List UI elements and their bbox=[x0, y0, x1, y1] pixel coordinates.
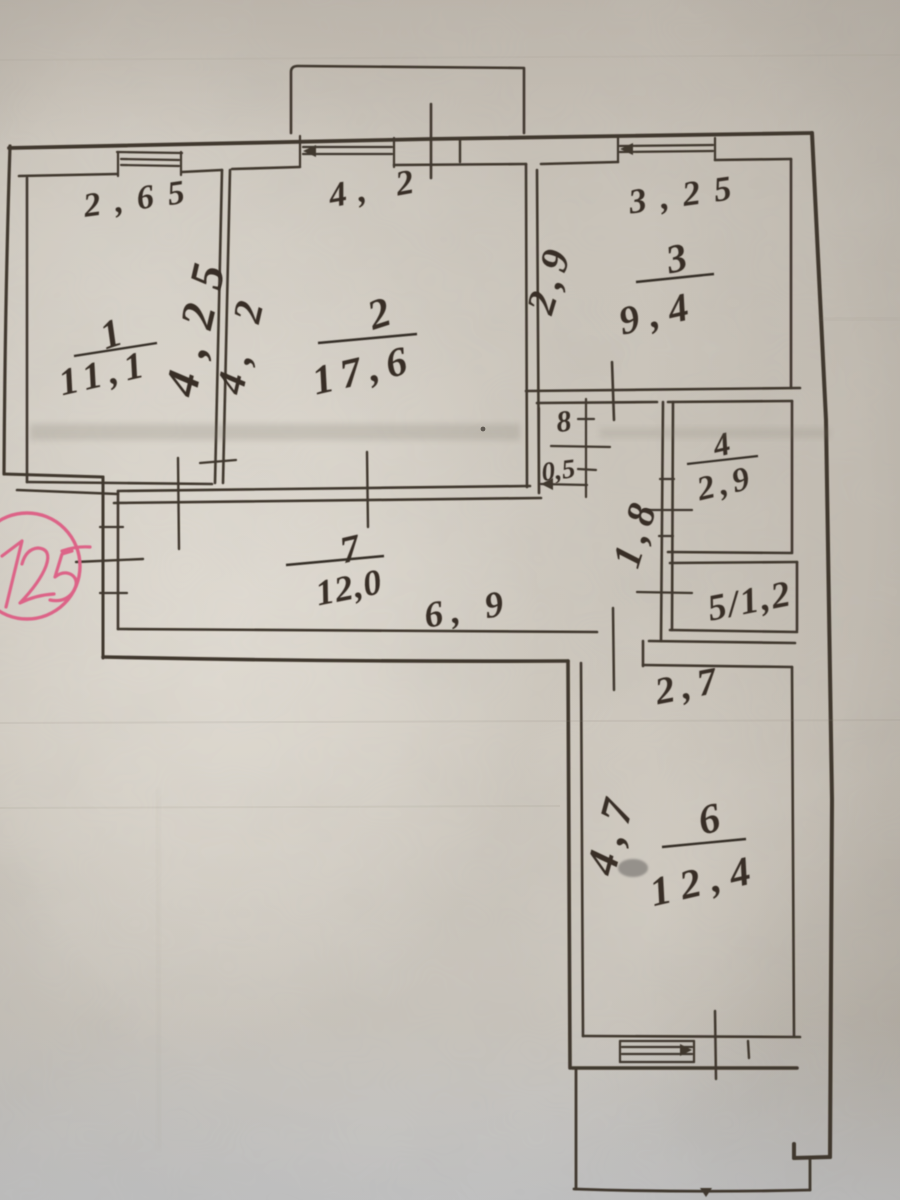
svg-text:0,5: 0,5 bbox=[540, 453, 577, 487]
